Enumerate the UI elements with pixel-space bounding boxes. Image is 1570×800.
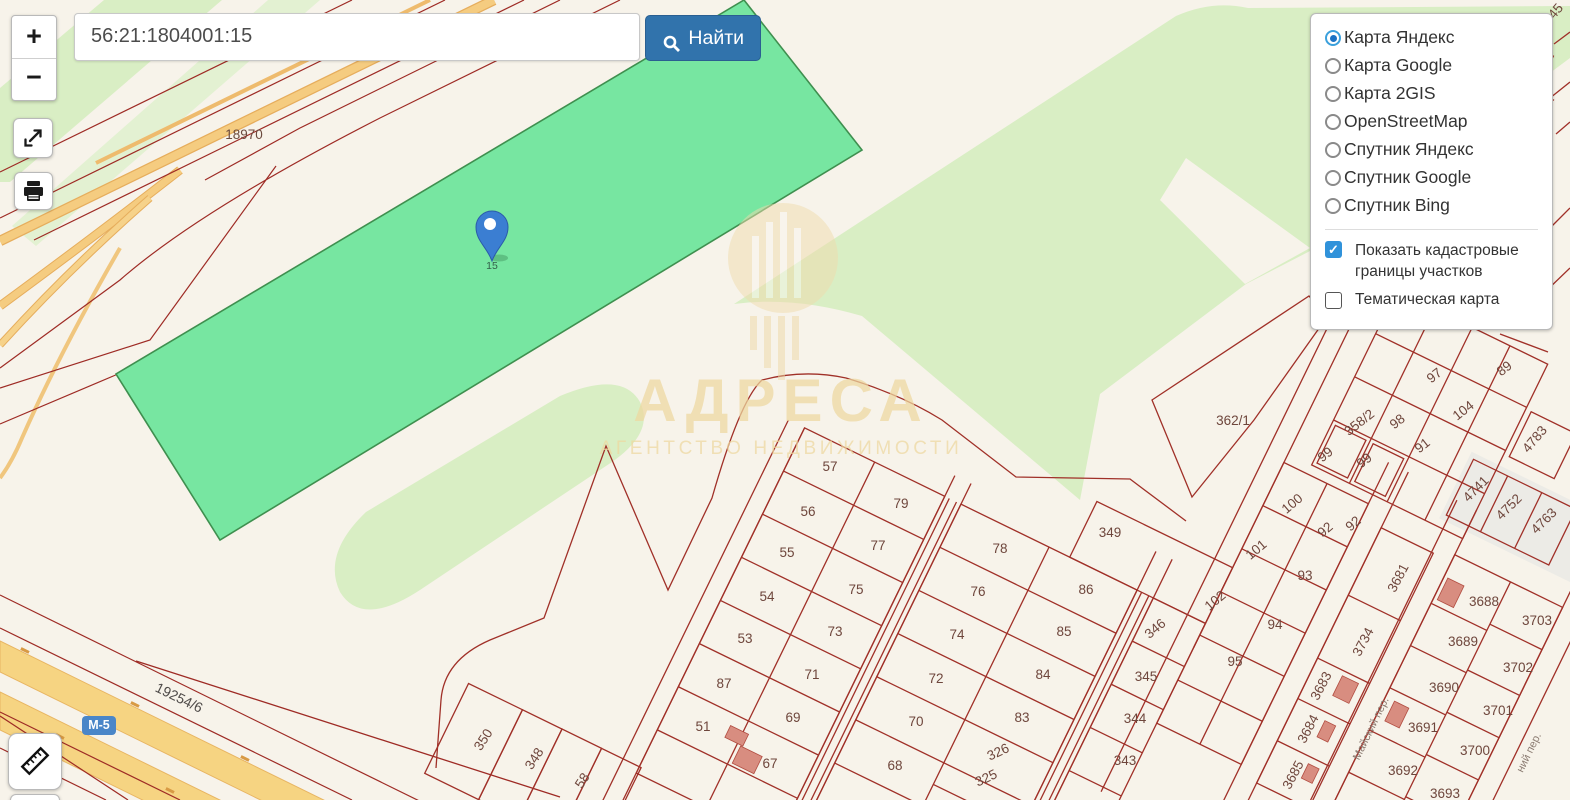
svg-text:349: 349 <box>1099 525 1122 540</box>
svg-text:70: 70 <box>908 714 923 729</box>
svg-text:86: 86 <box>1078 582 1093 597</box>
svg-text:3691: 3691 <box>1408 720 1438 735</box>
svg-text:343: 343 <box>1114 753 1137 768</box>
svg-text:87: 87 <box>716 676 731 691</box>
svg-text:56: 56 <box>800 504 815 519</box>
svg-text:АДРЕСА: АДРЕСА <box>633 367 929 434</box>
svg-text:76: 76 <box>970 584 985 599</box>
svg-text:3700: 3700 <box>1460 743 1490 758</box>
svg-text:71: 71 <box>804 667 819 682</box>
svg-text:3702: 3702 <box>1503 660 1533 675</box>
svg-text:3690: 3690 <box>1429 680 1459 695</box>
svg-text:АГЕНТСТВО НЕДВИЖИМОСТИ: АГЕНТСТВО НЕДВИЖИМОСТИ <box>600 438 963 459</box>
svg-text:57: 57 <box>822 459 837 474</box>
svg-text:93: 93 <box>1297 568 1312 583</box>
svg-text:3693: 3693 <box>1430 786 1460 800</box>
svg-text:67: 67 <box>762 756 777 771</box>
svg-text:51: 51 <box>695 719 710 734</box>
svg-text:72: 72 <box>928 671 943 686</box>
svg-text:95: 95 <box>1227 654 1242 669</box>
svg-text:345: 345 <box>1135 669 1158 684</box>
svg-text:3692: 3692 <box>1388 763 1418 778</box>
svg-text:68: 68 <box>887 758 902 773</box>
svg-text:53: 53 <box>737 631 752 646</box>
svg-text:74: 74 <box>949 627 965 642</box>
svg-text:3688: 3688 <box>1469 594 1499 609</box>
svg-text:3701: 3701 <box>1483 703 1513 718</box>
svg-text:69: 69 <box>785 710 800 725</box>
svg-text:94: 94 <box>1267 617 1283 632</box>
svg-text:85: 85 <box>1056 624 1071 639</box>
svg-text:15: 15 <box>486 260 498 272</box>
svg-text:77: 77 <box>870 538 885 553</box>
svg-text:84: 84 <box>1035 667 1051 682</box>
svg-text:75: 75 <box>848 582 863 597</box>
svg-text:83: 83 <box>1014 710 1029 725</box>
svg-text:18970: 18970 <box>225 127 263 142</box>
svg-text:362/1: 362/1 <box>1216 413 1250 428</box>
svg-text:54: 54 <box>759 589 775 604</box>
svg-text:3689: 3689 <box>1448 634 1478 649</box>
svg-text:3703: 3703 <box>1522 613 1552 628</box>
svg-text:78: 78 <box>992 541 1007 556</box>
svg-text:79: 79 <box>893 496 908 511</box>
svg-text:73: 73 <box>827 624 842 639</box>
svg-text:55: 55 <box>779 545 794 560</box>
svg-text:344: 344 <box>1124 711 1147 726</box>
